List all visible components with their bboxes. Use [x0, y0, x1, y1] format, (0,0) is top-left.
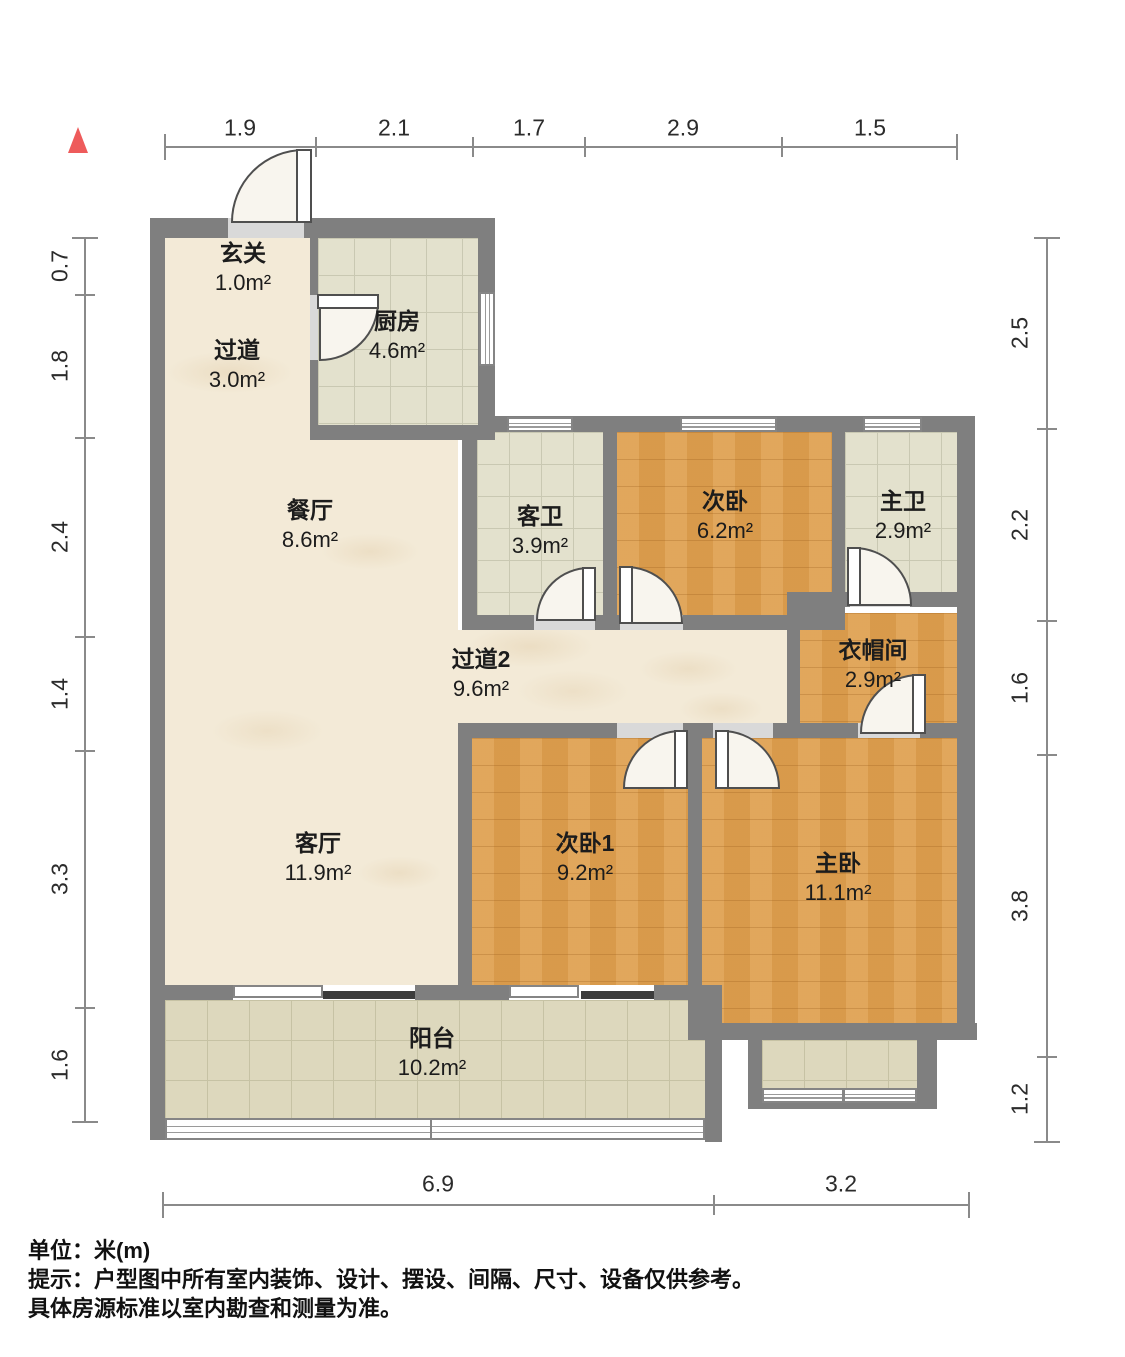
tick	[162, 1192, 164, 1218]
dim-bottom-2: 3.2	[825, 1171, 857, 1198]
master-bath-door	[846, 540, 919, 612]
dim-bottom-1: 6.9	[422, 1171, 454, 1198]
dim-left-6: 1.6	[47, 1049, 74, 1081]
wall-cloakroom-left	[787, 592, 800, 738]
dim-top-4: 2.9	[667, 115, 699, 142]
dim-left-4: 1.4	[47, 678, 74, 710]
tick	[1037, 428, 1057, 430]
room-label-master-bath: 主卫 2.9m²	[875, 487, 931, 545]
wall-platform-left	[748, 1040, 762, 1107]
room-name: 阳台	[398, 1024, 466, 1053]
room-label-kitchen: 厨房 4.6m²	[369, 307, 425, 365]
room-name: 过道2	[452, 645, 511, 674]
ruler-bottom-line	[163, 1204, 969, 1206]
ruler-right-line	[1046, 238, 1048, 1142]
room-name: 餐厅	[282, 496, 338, 525]
dim-left-3: 2.4	[47, 521, 74, 553]
north-indicator-icon	[68, 127, 88, 153]
balcony-window-left	[165, 1118, 432, 1140]
wall-top-right	[304, 218, 495, 238]
wall-platform-bottom	[748, 1103, 937, 1109]
dim-left-1: 0.7	[47, 250, 74, 282]
room-name: 次卧1	[556, 829, 615, 858]
room-label-hallway2: 过道2 9.6m²	[452, 645, 511, 703]
dim-right-1: 2.5	[1007, 317, 1034, 349]
room-label-cloakroom: 衣帽间 2.9m²	[839, 636, 908, 694]
dim-top-1: 1.9	[224, 115, 256, 142]
tick	[1037, 620, 1057, 622]
wall-hall2-bottom-a	[458, 723, 617, 738]
tick	[164, 134, 166, 160]
room-label-entry: 玄关 1.0m²	[215, 239, 271, 297]
bedroom1-balcony-slider-panel	[581, 991, 654, 999]
wall-living-bedroom1	[458, 738, 472, 985]
room-area: 4.6m²	[369, 336, 425, 365]
master-bath-window	[863, 417, 922, 432]
footer-notes: 单位：米(m) 提示：户型图中所有室内装饰、设计、摆设、间隔、尺寸、设备仅供参考…	[28, 1236, 754, 1323]
tick	[1037, 754, 1057, 756]
room-area: 8.6m²	[282, 525, 338, 554]
balcony-window-right	[430, 1118, 705, 1140]
room-name: 次卧	[697, 487, 753, 516]
wall-kitchen-left-upper	[310, 238, 318, 295]
ruler-left-line	[84, 238, 86, 1122]
kitchen-window	[479, 292, 495, 366]
guest-bath-window	[507, 417, 573, 432]
room-name: 主卧	[805, 849, 872, 878]
wall-guest-bath-left	[462, 432, 477, 630]
room-label-dining: 餐厅 8.6m²	[282, 496, 338, 554]
wall-platform-right	[917, 1040, 937, 1107]
tick	[472, 137, 474, 157]
dim-right-5: 1.2	[1007, 1083, 1034, 1115]
wall-left-outer	[150, 218, 165, 1140]
room-label-bedroom1: 次卧1 9.2m²	[556, 829, 615, 887]
wall-master-bottom	[688, 1023, 977, 1040]
ruler-top-line	[165, 146, 958, 148]
tick	[713, 1195, 715, 1215]
master-bedroom-door	[714, 723, 787, 795]
entry-door	[225, 143, 315, 233]
dim-top-5: 1.5	[854, 115, 886, 142]
tick	[75, 1007, 95, 1009]
room-label-living: 客厅 11.9m²	[285, 829, 352, 887]
bedroom1-balcony-slider-fixed	[509, 985, 579, 998]
platform-window-left	[762, 1088, 844, 1103]
wall-bedroom1-master	[688, 738, 702, 985]
tick	[584, 137, 586, 157]
room-label-balcony: 阳台 10.2m²	[398, 1024, 466, 1082]
platform-window-right	[843, 1088, 917, 1103]
room-area: 2.9m²	[875, 516, 931, 545]
dim-top-2: 2.1	[378, 115, 410, 142]
room-name: 厨房	[369, 307, 425, 336]
tick	[75, 437, 95, 439]
dim-right-2: 2.2	[1007, 509, 1034, 541]
tip-note-line2: 具体房源标准以室内勘查和测量为准。	[28, 1294, 754, 1323]
room-area: 3.9m²	[512, 531, 568, 560]
tick	[1037, 1056, 1057, 1058]
room-name: 客卫	[512, 502, 568, 531]
wall-bedroom2-bottom	[683, 615, 832, 630]
bedroom2-window	[680, 417, 777, 432]
wall-living-balcony-a	[150, 985, 233, 1000]
room-name: 玄关	[215, 239, 271, 268]
room-label-hallway: 过道 3.0m²	[209, 336, 265, 394]
tick	[968, 1192, 970, 1218]
tick	[781, 137, 783, 157]
wall-balcony-right	[705, 1000, 722, 1142]
tick	[75, 294, 95, 296]
bedroom2-door	[618, 560, 690, 630]
room-area: 10.2m²	[398, 1053, 466, 1082]
dim-top-3: 1.7	[513, 115, 545, 142]
room-label-guest-bath: 客卫 3.9m²	[512, 502, 568, 560]
room-area: 9.2m²	[556, 858, 615, 887]
wall-guest-bath-bedroom2	[603, 432, 617, 630]
bedroom1-door	[616, 723, 689, 795]
floorplan-stage: 玄关 1.0m² 过道 3.0m² 厨房 4.6m² 餐厅 8.6m² 客卫 3…	[0, 0, 1125, 1357]
wall-living-balcony-b	[415, 985, 509, 1000]
room-area: 11.1m²	[805, 878, 872, 907]
wall-kitchen-left-lower	[310, 360, 318, 425]
room-name: 主卫	[875, 487, 931, 516]
room-label-master-bedroom: 主卧 11.1m²	[805, 849, 872, 907]
tick	[72, 237, 98, 239]
unit-note: 单位：米(m)	[28, 1236, 754, 1265]
room-area: 2.9m²	[839, 665, 908, 694]
tick	[1034, 1141, 1060, 1143]
living-balcony-slider-fixed	[233, 985, 323, 998]
room-area: 6.2m²	[697, 516, 753, 545]
room-area: 3.0m²	[209, 365, 265, 394]
wall-living-balcony-c	[654, 985, 722, 1000]
room-label-bedroom2: 次卧 6.2m²	[697, 487, 753, 545]
wall-junction-patch	[800, 592, 845, 615]
tick	[1034, 237, 1060, 239]
wall-balcony-right-stub	[688, 1000, 707, 1023]
room-name: 过道	[209, 336, 265, 365]
dim-right-3: 1.6	[1007, 672, 1034, 704]
tick	[956, 134, 958, 160]
tick	[72, 1121, 98, 1123]
wall-guest-bath-bottom-left	[462, 615, 534, 630]
tick	[75, 750, 95, 752]
wall-guest-bath-bottom-right	[595, 615, 620, 630]
tick	[315, 137, 317, 157]
tip-note-line1: 提示：户型图中所有室内装饰、设计、摆设、间隔、尺寸、设备仅供参考。	[28, 1265, 754, 1294]
room-area: 11.9m²	[285, 858, 352, 887]
tick	[75, 636, 95, 638]
floor-ac-platform	[762, 1040, 917, 1088]
room-name: 衣帽间	[839, 636, 908, 665]
dim-right-4: 3.8	[1007, 890, 1034, 922]
dim-left-5: 3.3	[47, 863, 74, 895]
dim-left-2: 1.8	[47, 350, 74, 382]
room-name: 客厅	[285, 829, 352, 858]
living-balcony-slider-panel	[323, 991, 415, 999]
guest-bath-door	[530, 560, 596, 626]
wall-right-outer	[957, 416, 975, 1040]
room-area: 1.0m²	[215, 268, 271, 297]
room-area: 9.6m²	[452, 674, 511, 703]
